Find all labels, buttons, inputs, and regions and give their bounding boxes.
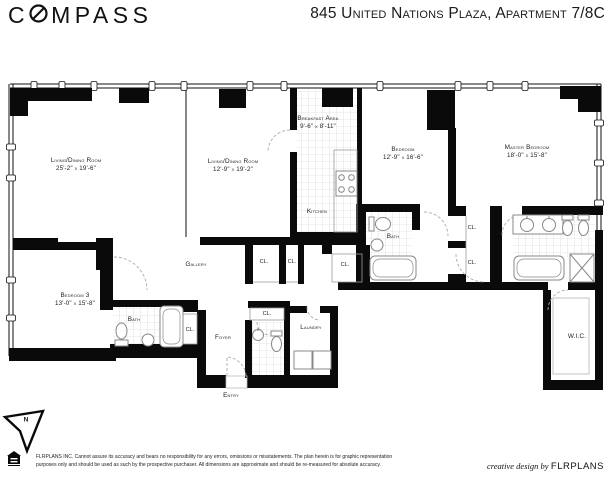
floor-plan-page: C MPASS 845 United Nations Plaza, Apartm…: [0, 0, 610, 480]
room-label-bedroom: Bedroom 12'-9" x 16'-6": [383, 146, 423, 162]
washer-dryer: [294, 351, 331, 369]
credit-text: creative design by FLRPLANS: [487, 461, 604, 472]
closet-label: CL.: [260, 259, 269, 265]
closet-label: CL.: [288, 259, 297, 265]
room-label-master-bedroom: Master Bedroom 18'-0" x 15'-8": [505, 144, 550, 160]
vanity-master-bath: [513, 215, 563, 234]
closet-label: CL.: [186, 327, 195, 333]
closet-label: CL.: [263, 311, 272, 317]
room-label-foyer: Foyer: [215, 334, 231, 342]
north-label: N: [24, 417, 29, 424]
equal-housing-icon: [7, 451, 21, 466]
room-label-living-dining-2: Living/Dining Room 12'-9" x 19'-2": [208, 158, 259, 174]
room-label-laundry: Laundry: [300, 324, 321, 332]
bathtub-bath2: [370, 256, 416, 280]
disclaimer-line-1: FLRPLANS INC. Cannot assure its accuracy…: [36, 453, 456, 461]
room-label-wic: W.I.C.: [568, 333, 586, 341]
credit-prefix: creative design by: [487, 461, 549, 471]
room-label-bath-bedroom: Bath: [387, 233, 400, 241]
disclaimer-text: FLRPLANS INC. Cannot assure its accuracy…: [36, 453, 456, 469]
toilet-bath2: [369, 217, 391, 231]
shower-master: [570, 254, 594, 282]
stove: [336, 171, 357, 196]
room-label-breakfast-area: Breakfast Area 9'-6" x 8'-11": [297, 115, 338, 131]
room-label-gallery: Gallery: [185, 261, 206, 269]
disclaimer-line-2: purposes only and should be used as such…: [36, 461, 456, 469]
closet-label: CL.: [468, 260, 477, 266]
closet-label: CL.: [341, 262, 350, 268]
sink-bath3: [142, 334, 154, 346]
bathtub-master: [514, 256, 564, 280]
bathtub-bath3: [160, 306, 183, 347]
floor-plan-drawing: [0, 0, 610, 480]
toilet-powder: [271, 331, 282, 352]
room-label-kitchen: Kitchen: [307, 208, 327, 216]
sink-bath2: [371, 239, 383, 251]
room-label-bedroom-3: Bedroom 3 13'-0" x 15'-8": [55, 292, 95, 308]
room-label-bath-bedroom3: Bath: [128, 316, 141, 324]
room-label-entry: Entry: [223, 392, 239, 400]
credit-brand: FLRPLANS: [551, 461, 604, 472]
closet-label: CL.: [468, 225, 477, 231]
room-label-living-dining-1: Living/Dining Room 25'-2" x 19'-6": [51, 157, 102, 173]
toilet-bath3: [115, 323, 128, 346]
